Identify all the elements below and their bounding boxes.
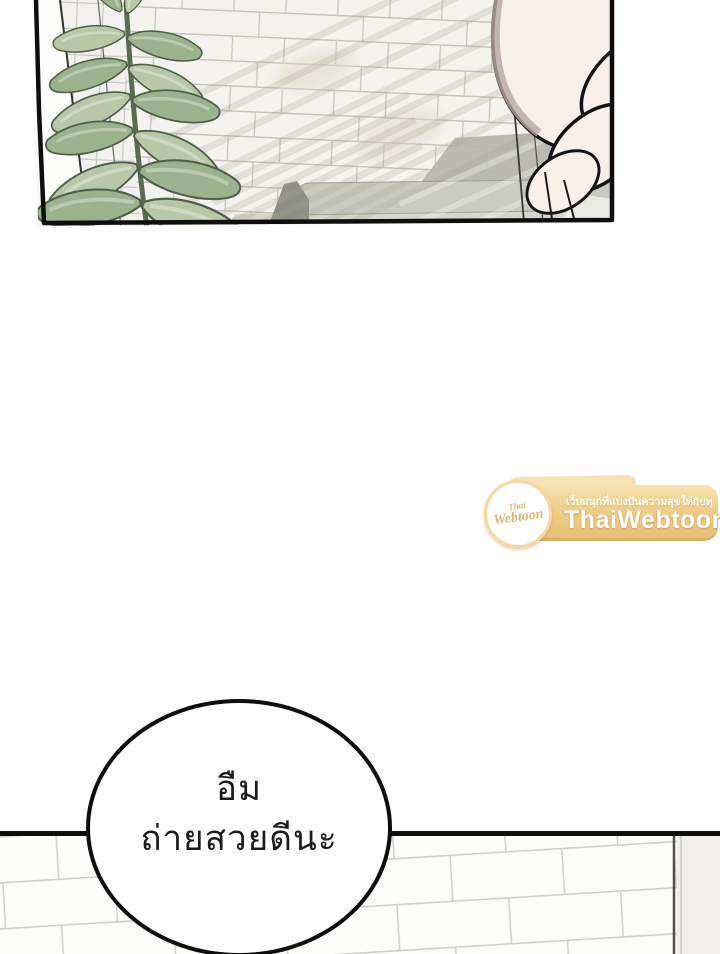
bottom-wall-plain xyxy=(677,836,720,954)
panel-top xyxy=(0,0,720,230)
comic-page: เว็บสนุกที่แบ่งปันความสุขให้กับทุกคน Tha… xyxy=(0,0,720,954)
speech-bubble-line-2: ถ่ายสวยดีนะ xyxy=(140,819,337,859)
watermark-logo-text-bottom: Webtoon xyxy=(493,508,545,530)
speech-bubble-line-1: อืม xyxy=(216,769,262,809)
speech-bubble: อืม ถ่ายสวยดีนะ xyxy=(86,699,392,954)
watermark-banner: เว็บสนุกที่แบ่งปันความสุขให้กับทุกคน Tha… xyxy=(484,472,720,550)
watermark-brand: ThaiWebtoon xyxy=(564,506,714,535)
